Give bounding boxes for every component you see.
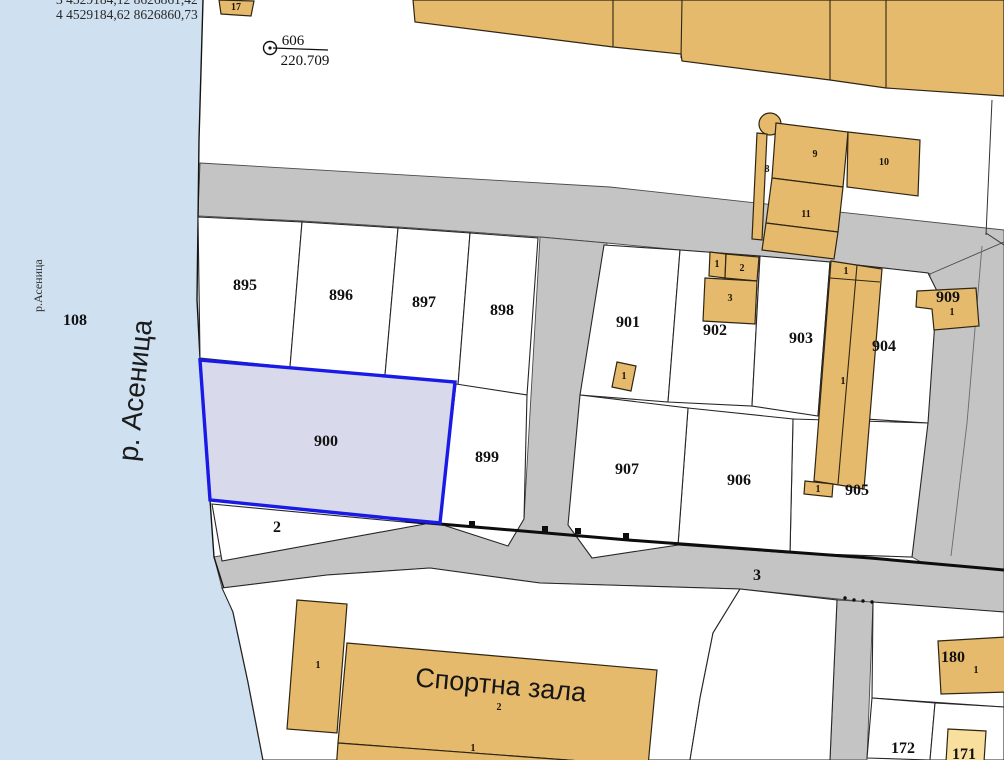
building-8-label: 8 [765, 164, 770, 175]
boundary-marker [623, 533, 629, 539]
building-180-1-label: 1 [974, 665, 979, 676]
boundary-marker [469, 521, 475, 527]
boundary-marker [575, 528, 581, 534]
boundary-line-topright [986, 100, 992, 235]
parcel-172-label: 172 [891, 740, 915, 757]
dotted-boundary-dot [852, 598, 855, 601]
parcel-2-label: 2 [273, 519, 281, 536]
dotted-boundary-dot [870, 600, 873, 603]
parcel-906-label: 906 [727, 472, 751, 489]
building-11-label: 11 [801, 209, 810, 220]
dotted-boundary-dot [843, 596, 846, 599]
building-sport-num-label: 2 [497, 702, 502, 713]
dotted-boundary-dot [861, 599, 864, 602]
building-9[interactable] [772, 123, 848, 187]
map-canvas[interactable]: 606 220.709 3 4529184,12 8626861,42 4 45… [0, 0, 1004, 760]
building-sport-left-label: 1 [316, 660, 321, 671]
building-902-3-label: 3 [728, 293, 733, 304]
parcel-171-label: 171 [952, 746, 976, 760]
building-905-tab-label: 1 [816, 484, 821, 495]
building-902-1-label: 1 [715, 259, 720, 270]
building-17-label: 17 [231, 2, 241, 13]
parcel-895-label: 895 [233, 277, 257, 294]
river-name-small: р.Асеница [31, 259, 45, 312]
parcel-896-label: 896 [329, 287, 353, 304]
coordinate-line: 4 4529184,62 8626860,73 [56, 7, 198, 22]
boundary-marker [542, 526, 548, 532]
benchmark-icon-dot [268, 46, 271, 49]
building-904-top-label: 1 [844, 266, 849, 277]
road-3-label: 3 [753, 567, 761, 584]
parcel-899-label: 899 [475, 449, 499, 466]
parcel-904-label: 904 [872, 338, 896, 355]
cadastral-map: 606 220.709 3 4529184,12 8626861,42 4 45… [0, 0, 1004, 760]
parcel-897-label: 897 [412, 294, 436, 311]
benchmark-elevation: 220.709 [281, 53, 330, 69]
coordinate-line-clipped: 3 4529184,12 8626861,42 [56, 0, 198, 7]
building-902-2-label: 2 [740, 263, 745, 274]
building-909-label: 1 [950, 307, 955, 318]
parcel-905-label: 905 [845, 482, 869, 499]
building-top-block[interactable] [413, 0, 1004, 96]
building-901-1-label: 1 [622, 371, 627, 382]
building-9-label: 9 [813, 149, 818, 160]
parcel-902-label: 902 [703, 322, 727, 339]
parcel-900-label: 900 [314, 433, 338, 450]
parcel-901-label: 901 [616, 314, 640, 331]
parcel-108-label: 108 [63, 312, 87, 329]
building-10-label: 10 [879, 157, 889, 168]
benchmark-id: 606 [282, 33, 305, 49]
parcel-909-label: 909 [936, 289, 960, 306]
parcel-898-label: 898 [490, 302, 514, 319]
building-sport-lower-label: 1 [471, 743, 476, 754]
parcel-180-label: 180 [941, 649, 965, 666]
parcel-903-label: 903 [789, 330, 813, 347]
building-904-mid-label: 1 [841, 376, 846, 387]
parcel-907-label: 907 [615, 461, 639, 478]
